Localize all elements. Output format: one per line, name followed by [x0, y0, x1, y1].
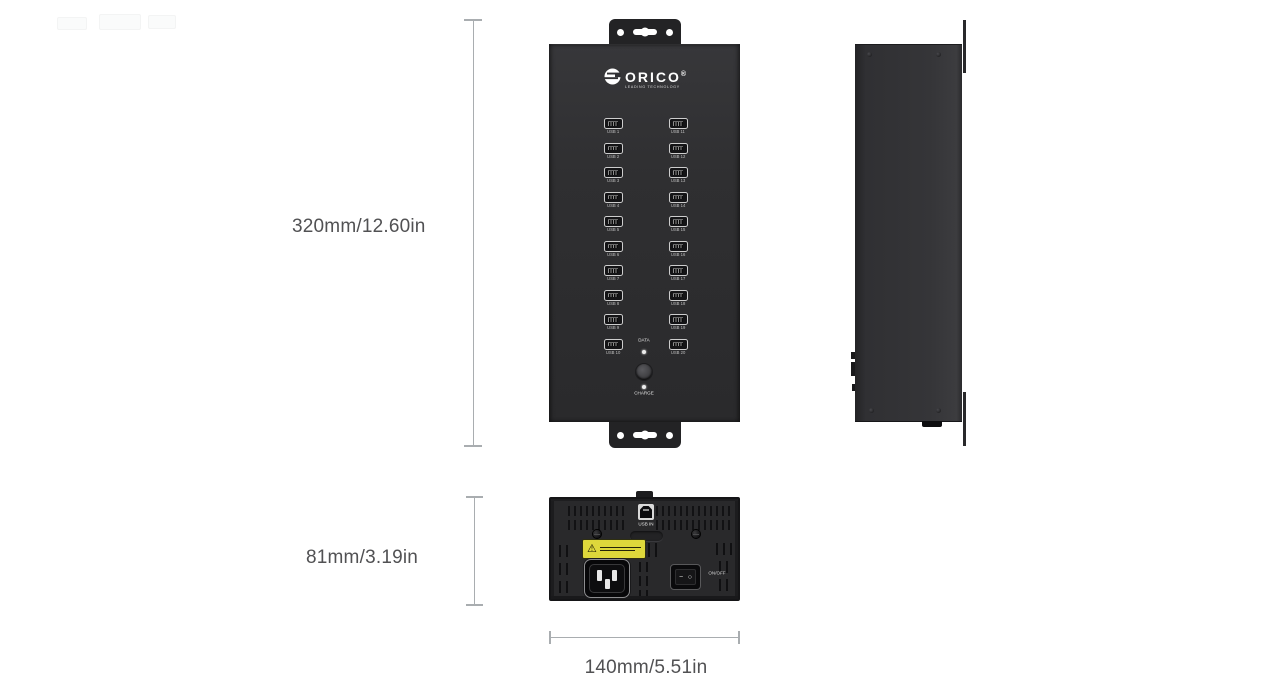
usb-a-port	[669, 290, 688, 301]
screw	[867, 52, 872, 57]
usb-a-port	[669, 339, 688, 350]
mounting-bracket-bottom	[609, 422, 681, 448]
usb-port-label: USB 20	[671, 351, 685, 355]
usb-port-label: USB 7	[607, 277, 619, 281]
ac-pin-slot	[605, 579, 610, 589]
watermark-artifact	[57, 17, 87, 30]
usb-port-item: USB 20	[659, 339, 697, 364]
usb-pins	[608, 219, 618, 224]
usb-port-label: USB 15	[671, 228, 685, 232]
usb-in-label: USB IN	[633, 522, 659, 527]
screw	[936, 52, 941, 57]
orico-logo: ORICO® LEADING TECHNOLOGY	[604, 68, 747, 94]
ac-pin-slot	[612, 570, 617, 581]
product-dimension-diagram: 320mm/12.60in 81mm/3.19in 140mm/5.51in O…	[0, 0, 1280, 700]
usb-a-port	[604, 314, 623, 325]
usb-port-item: USB 7	[594, 265, 632, 290]
vent-grille	[639, 576, 648, 586]
usb-pins	[673, 342, 683, 347]
dimension-label-bottom-width: 140mm/5.51in	[558, 657, 734, 679]
usb-port-label: USB 11	[671, 130, 685, 134]
warning-text-lines	[600, 545, 641, 553]
dimension-cap	[738, 631, 740, 644]
front-panel: ORICO® LEADING TECHNOLOGY USB 1 USB 2 US…	[549, 44, 740, 422]
bracket-screw-hole	[666, 432, 673, 439]
usb-a-port	[604, 118, 623, 129]
vent-grille	[719, 579, 733, 591]
screw	[936, 408, 941, 413]
side-bracket-edge-top	[963, 20, 966, 73]
switch-on-symbol: −	[679, 574, 683, 581]
dimension-cap	[549, 631, 551, 644]
usb-pins	[673, 293, 683, 298]
vent-grille	[656, 520, 734, 530]
side-switch-bump	[922, 421, 942, 427]
usb-pins	[608, 317, 618, 322]
dimension-label-bottom-height: 81mm/3.19in	[306, 547, 418, 569]
usb-port-label: USB 19	[671, 326, 685, 330]
usb-port-label: USB 13	[671, 179, 685, 183]
registered-mark: ®	[681, 71, 686, 78]
usb-port-item: USB 18	[659, 290, 697, 315]
usb-a-port	[604, 265, 623, 276]
usb-pins	[608, 146, 618, 151]
usb-a-port	[669, 241, 688, 252]
usb-port-item: USB 3	[594, 167, 632, 192]
usb-a-port	[604, 143, 623, 154]
bracket-slot	[633, 29, 657, 35]
dimension-line-front-height	[473, 20, 474, 447]
brand-tagline: LEADING TECHNOLOGY	[625, 85, 680, 89]
usb-pins	[608, 244, 618, 249]
usb-port-item: USB 16	[659, 241, 697, 266]
vent-grille	[559, 545, 569, 557]
usb-a-port	[604, 339, 623, 350]
usb-pins	[608, 121, 618, 126]
bracket-screw-hole	[617, 29, 624, 36]
dimension-line-bottom-width	[550, 637, 740, 638]
usb-pins	[673, 317, 683, 322]
vent-grille	[716, 543, 734, 555]
vent-grille	[656, 506, 734, 516]
dimension-line-bottom-height	[474, 497, 475, 605]
usb-a-port	[669, 143, 688, 154]
usb-a-port	[604, 241, 623, 252]
usb-a-port	[669, 216, 688, 227]
side-port-nub	[852, 384, 855, 391]
usb-a-port	[669, 265, 688, 276]
usb-pins	[608, 195, 618, 200]
usb-pins	[673, 268, 683, 273]
watermark-artifact	[99, 14, 141, 30]
usb-a-port	[604, 216, 623, 227]
usb-port-label: USB 4	[607, 204, 619, 208]
dimension-cap	[464, 445, 482, 447]
screw	[692, 530, 700, 538]
ac-pin-slot	[597, 570, 602, 581]
usb-port-item: USB 5	[594, 216, 632, 241]
usb-pins	[608, 268, 618, 273]
usb-pins	[608, 293, 618, 298]
usb-port-item: USB 14	[659, 192, 697, 217]
usb-a-port	[669, 118, 688, 129]
usb-port-item: USB 15	[659, 216, 697, 241]
usb-port-item: USB 4	[594, 192, 632, 217]
vent-grille	[568, 506, 624, 516]
usb-port-label: USB 16	[671, 253, 685, 257]
usb-pins	[673, 170, 683, 175]
usb-port-label: USB 10	[606, 351, 620, 355]
vent-grille	[639, 590, 648, 596]
usb-port-item: USB 2	[594, 143, 632, 168]
vent-grille	[639, 562, 648, 572]
dimension-label-front-height: 320mm/12.60in	[292, 216, 426, 238]
bottom-panel: USB IN ⚠ − ○ ON/OFF	[549, 497, 740, 601]
usb-a-port	[604, 290, 623, 301]
usb-port-item: USB 8	[594, 290, 632, 315]
mode-button	[636, 364, 652, 380]
usb-port-label: USB 14	[671, 204, 685, 208]
vent-grille	[559, 563, 569, 575]
usb-port-item: USB 6	[594, 241, 632, 266]
usb-port-item: USB 12	[659, 143, 697, 168]
charge-led	[642, 385, 646, 389]
switch-off-symbol: ○	[688, 574, 692, 581]
usb-a-port	[669, 167, 688, 178]
bracket-slot	[633, 432, 657, 438]
charge-led-label: CHARGE	[634, 391, 655, 396]
usb-port-label: USB 12	[671, 155, 685, 159]
usb-b-in-port	[638, 504, 654, 520]
usb-port-label: USB 8	[607, 302, 619, 306]
usb-port-label: USB 1	[607, 130, 619, 134]
usb-port-item: USB 13	[659, 167, 697, 192]
usb-port-item: USB 19	[659, 314, 697, 339]
warning-triangle-icon: ⚠	[587, 544, 597, 555]
usb-a-port	[604, 192, 623, 203]
usb-pins	[673, 244, 683, 249]
bracket-screw-hole	[666, 29, 673, 36]
usb-column-right: USB 11 USB 12 USB 13 USB 14 USB 15 USB 1…	[659, 118, 697, 363]
usb-a-port	[669, 314, 688, 325]
usb-pins	[673, 219, 683, 224]
usb-port-item: USB 11	[659, 118, 697, 143]
usb-pins	[673, 195, 683, 200]
side-port-nub	[851, 352, 855, 359]
vent-grille	[568, 520, 624, 530]
watermark-artifact	[148, 15, 176, 29]
dimension-cap	[466, 496, 483, 498]
data-led-label: DATA	[636, 338, 652, 343]
ac-power-inlet	[584, 559, 630, 598]
usb-column-left: USB 1 USB 2 USB 3 USB 4 USB 5 USB 6 USB …	[594, 118, 632, 363]
dimension-cap	[464, 19, 482, 21]
usb-port-label: USB 17	[671, 277, 685, 281]
usb-port-label: USB 9	[607, 326, 619, 330]
side-bracket-edge-bottom	[963, 392, 966, 446]
on-off-label: ON/OFF	[704, 571, 730, 576]
side-port-nub	[851, 362, 855, 376]
usb-port-label: USB 2	[607, 155, 619, 159]
warning-label: ⚠	[582, 539, 646, 559]
vent-grille	[648, 543, 662, 557]
usb-port-label: USB 18	[671, 302, 685, 306]
ac-inlet-face	[589, 564, 625, 593]
usb-port-label: USB 5	[607, 228, 619, 232]
usb-pins	[673, 121, 683, 126]
usb-port-item: USB 10	[594, 339, 632, 364]
usb-pins	[608, 170, 618, 175]
usb-a-port	[604, 167, 623, 178]
side-panel	[855, 44, 962, 422]
mounting-bracket-top	[609, 19, 681, 45]
bracket-screw-hole	[617, 432, 624, 439]
usb-pins	[673, 146, 683, 151]
power-rocker-switch: − ○	[670, 564, 701, 590]
screw	[593, 530, 601, 538]
usb-port-item: USB 9	[594, 314, 632, 339]
dimension-cap	[466, 604, 483, 606]
usb-a-port	[669, 192, 688, 203]
usb-b-socket	[640, 506, 652, 518]
vent-grille	[559, 581, 569, 593]
rocker: − ○	[675, 569, 696, 585]
usb-pins	[608, 342, 618, 347]
usb-port-item: USB 17	[659, 265, 697, 290]
screw	[869, 408, 874, 413]
usb-port-item: USB 1	[594, 118, 632, 143]
usb-port-label: USB 6	[607, 253, 619, 257]
data-led	[642, 350, 646, 354]
usb-port-label: USB 3	[607, 179, 619, 183]
orico-logo-icon	[604, 68, 621, 85]
brand-name: ORICO®	[625, 68, 747, 84]
